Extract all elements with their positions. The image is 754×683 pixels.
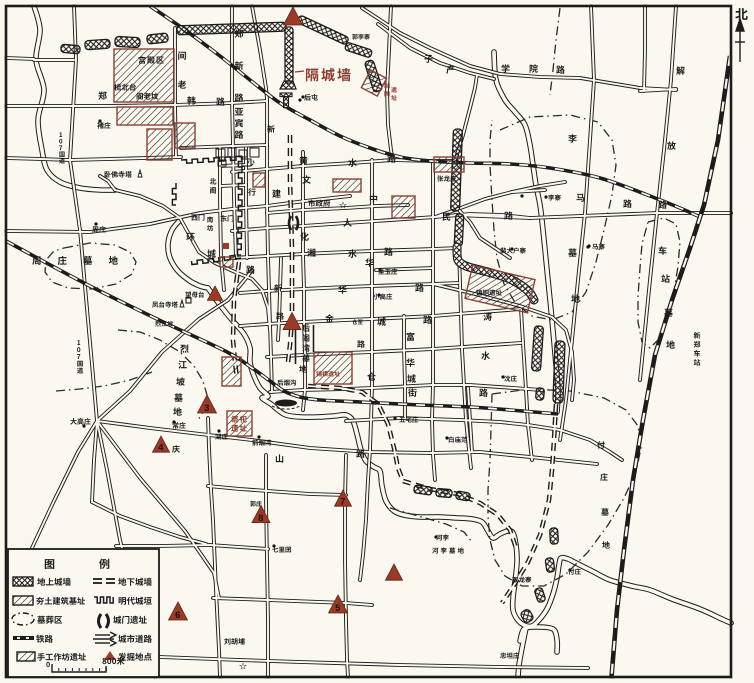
svg-text:7: 7 xyxy=(340,497,345,508)
svg-text:4: 4 xyxy=(158,443,164,454)
svg-text:5: 5 xyxy=(335,603,341,614)
svg-text:6: 6 xyxy=(175,610,180,621)
svg-text:8: 8 xyxy=(258,513,263,524)
svg-text:3: 3 xyxy=(204,403,209,414)
